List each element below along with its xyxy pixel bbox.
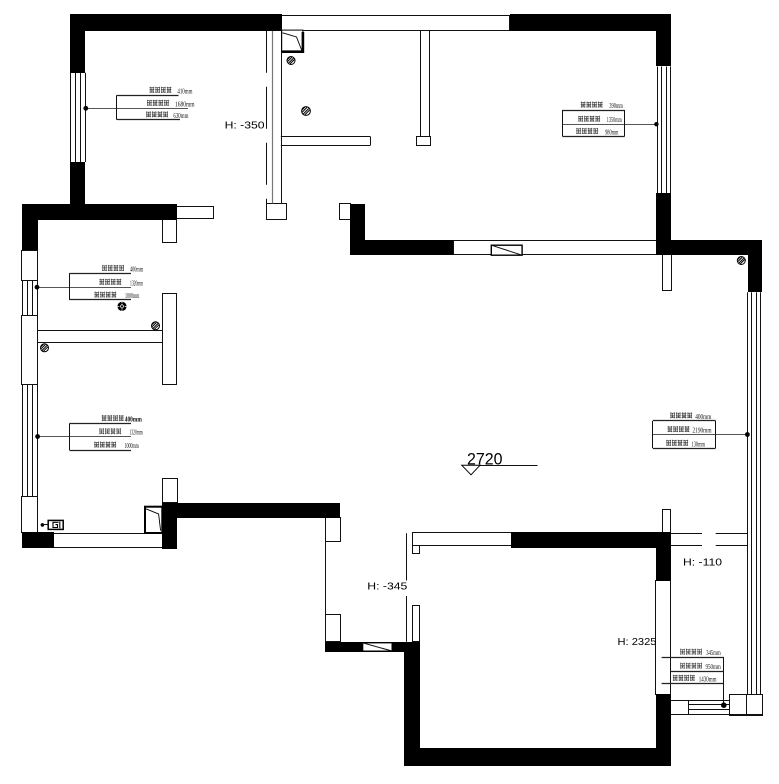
- svg-text:1000mm: 1000mm: [125, 441, 139, 450]
- svg-text:H: 2325: H: 2325: [618, 636, 657, 648]
- svg-text:950mm: 950mm: [706, 662, 721, 671]
- svg-text:400mm: 400mm: [695, 412, 711, 421]
- svg-text:H: -110: H: -110: [683, 557, 722, 569]
- svg-text:1680mm: 1680mm: [175, 99, 195, 108]
- svg-text:2190mm: 2190mm: [693, 426, 712, 435]
- svg-text:H: -345: H: -345: [367, 580, 407, 592]
- svg-text:400mm: 400mm: [130, 264, 143, 273]
- svg-text:1430mm: 1430mm: [699, 674, 717, 683]
- svg-text:1320mm: 1320mm: [130, 278, 143, 287]
- svg-text:390mm: 390mm: [609, 101, 623, 110]
- svg-text:980mm: 980mm: [605, 127, 618, 136]
- svg-text:630mm: 630mm: [173, 111, 188, 120]
- svg-text:H: -350: H: -350: [225, 119, 265, 131]
- svg-text:345mm: 345mm: [706, 648, 721, 657]
- svg-text:1000mm: 1000mm: [125, 291, 139, 300]
- svg-text:400mm: 400mm: [125, 415, 143, 424]
- svg-text:410mm: 410mm: [177, 86, 192, 95]
- svg-text:1320mm: 1320mm: [130, 428, 143, 437]
- svg-text:1350mm: 1350mm: [607, 115, 622, 124]
- svg-text:130mm: 130mm: [692, 439, 706, 448]
